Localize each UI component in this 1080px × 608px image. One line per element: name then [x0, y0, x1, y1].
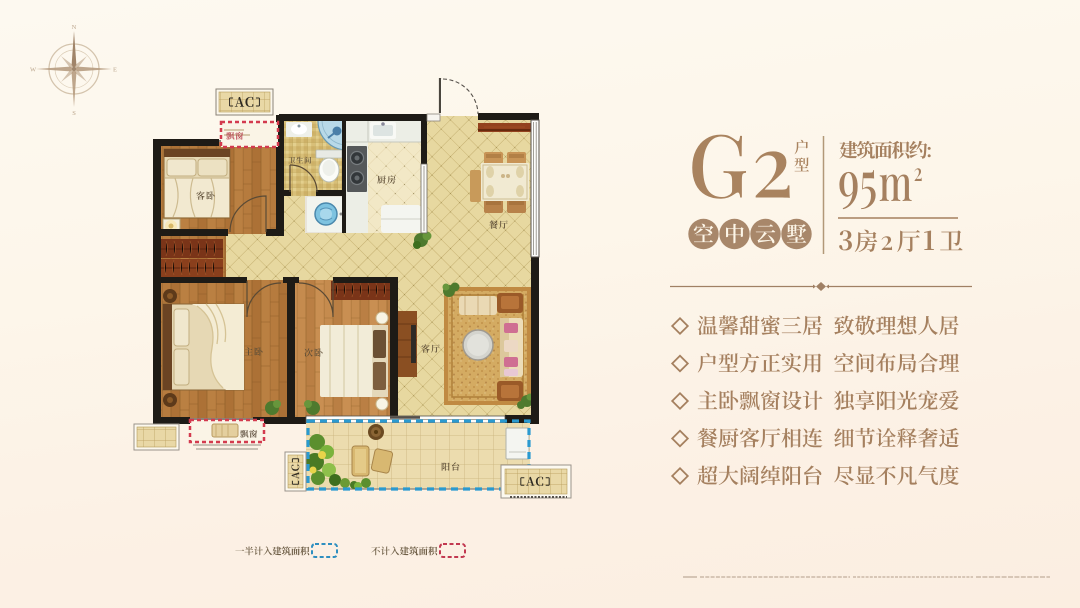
svg-text:N: N	[72, 24, 77, 31]
svg-text:W: W	[30, 67, 37, 74]
svg-text:S: S	[72, 110, 76, 117]
svg-text:E: E	[113, 67, 117, 74]
